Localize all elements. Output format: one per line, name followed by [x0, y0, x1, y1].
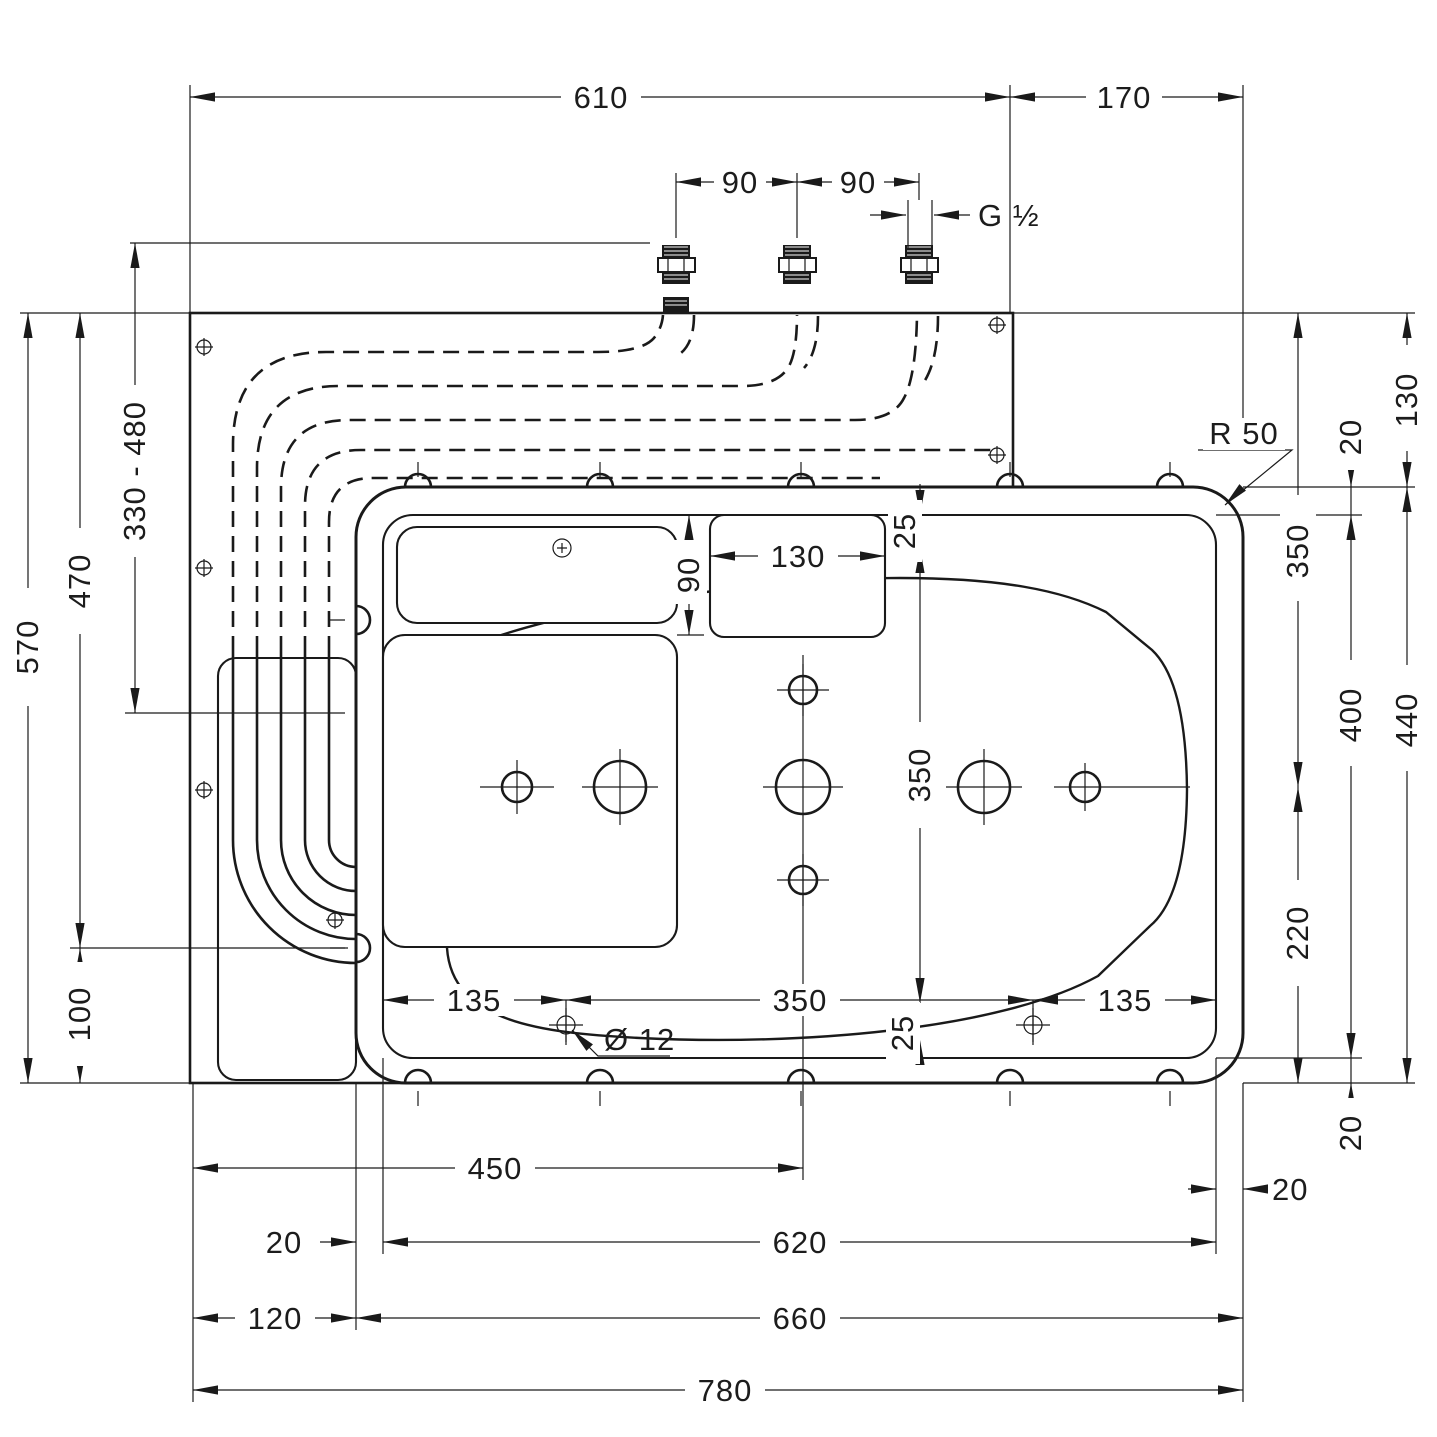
dim-90-left: 90	[722, 165, 758, 200]
dim-25-bottom: 25	[885, 1015, 920, 1051]
dim-90-right: 90	[840, 165, 876, 200]
dim-350-center: 350	[902, 748, 937, 803]
dim-470: 470	[62, 554, 97, 609]
dim-20-top-right: 20	[1333, 419, 1368, 455]
dim-450: 450	[468, 1151, 523, 1186]
dim-120: 120	[248, 1301, 303, 1336]
fitting-1	[658, 245, 695, 312]
dim-780: 780	[698, 1373, 753, 1408]
dim-170: 170	[1097, 80, 1152, 115]
dim-350-right: 350	[1280, 524, 1315, 579]
dim-thread-g12: G ½	[978, 198, 1040, 233]
dim-20-left-gap: 20	[266, 1225, 302, 1260]
dim-440: 440	[1389, 693, 1424, 748]
dim-25-top: 25	[887, 513, 922, 549]
pipe-fittings	[658, 245, 938, 312]
dim-330-480: 330 - 480	[117, 401, 152, 541]
dim-130-box: 130	[771, 539, 826, 574]
dim-400: 400	[1333, 688, 1368, 743]
dim-620: 620	[773, 1225, 828, 1260]
dim-20-right-gap: 20	[1272, 1172, 1308, 1207]
dim-135-right: 135	[1098, 983, 1153, 1018]
dim-r50: R 50	[1209, 416, 1278, 451]
dim-135-left: 135	[447, 983, 502, 1018]
dimensional-drawing: 610 170 90 90 G ½ 570 470 330 - 480	[0, 0, 1437, 1437]
dim-20-bottom-right: 20	[1333, 1115, 1368, 1151]
technical-drawing-page: 610 170 90 90 G ½ 570 470 330 - 480	[0, 0, 1437, 1437]
dim-100: 100	[62, 987, 97, 1042]
dim-570: 570	[10, 620, 45, 675]
dimensions-bottom: 450 20 20 620 120 660 780	[193, 1058, 1308, 1408]
dim-220: 220	[1280, 906, 1315, 961]
fitting-3	[901, 245, 938, 284]
dim-130-right: 130	[1389, 373, 1424, 428]
fitting-2	[779, 245, 816, 284]
dim-90-chamber: 90	[671, 557, 706, 593]
dim-dia-12: Ø 12	[604, 1022, 675, 1057]
dim-350-studs: 350	[773, 983, 828, 1018]
dim-660: 660	[773, 1301, 828, 1336]
dim-610: 610	[574, 80, 629, 115]
